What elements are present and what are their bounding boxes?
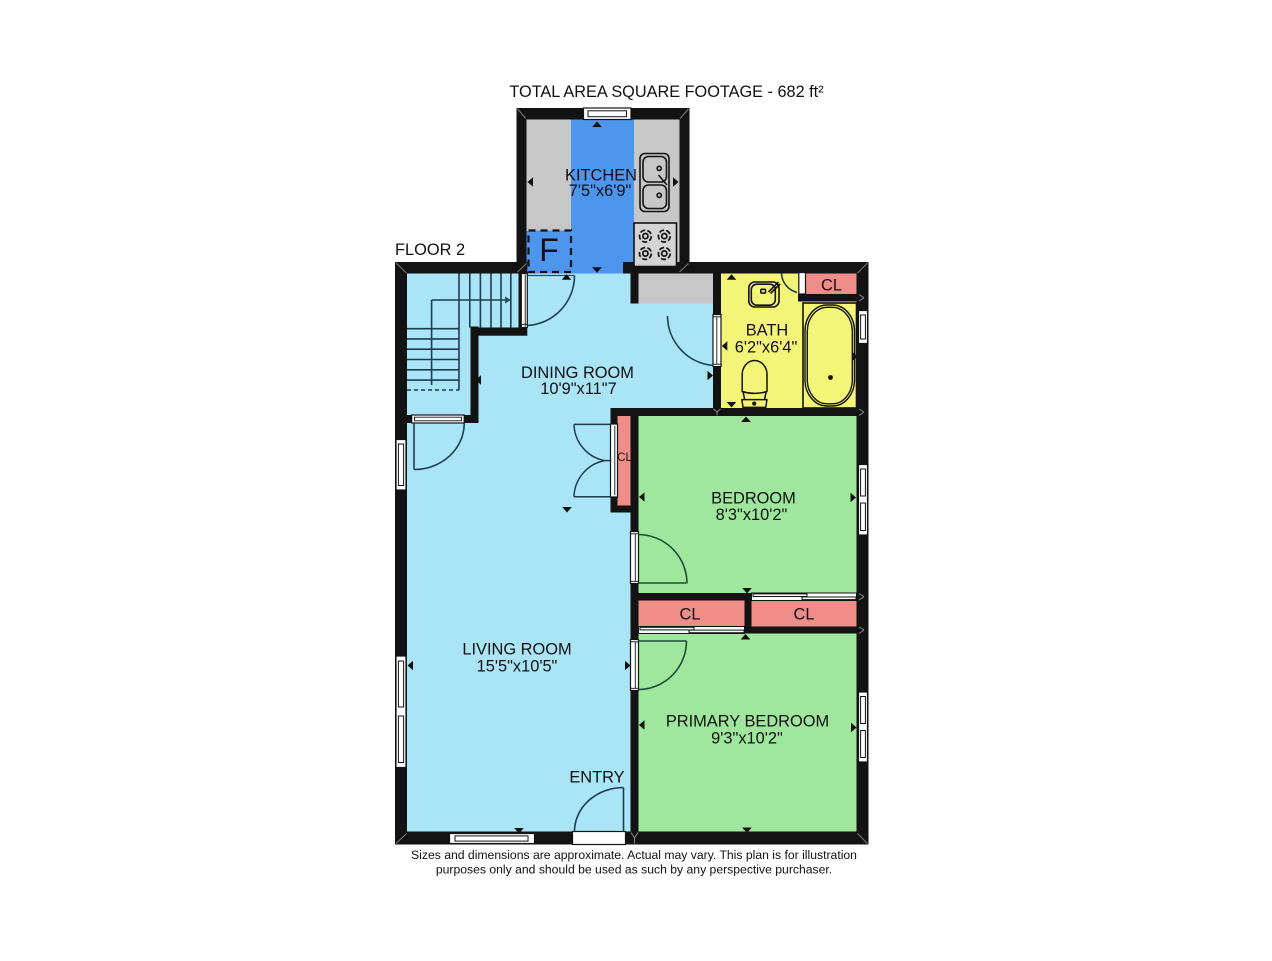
svg-text:LIVING ROOM: LIVING ROOM [462,641,571,659]
svg-text:PRIMARY BEDROOM: PRIMARY BEDROOM [666,713,829,731]
svg-text:F: F [539,232,559,268]
svg-text:15'5"x10'5": 15'5"x10'5" [477,658,558,676]
svg-text:10'9"x11"7: 10'9"x11"7 [540,380,616,398]
svg-text:CL: CL [821,277,842,295]
svg-text:7'5"x6'9": 7'5"x6'9" [569,182,632,200]
svg-text:8'3"x10'2": 8'3"x10'2" [716,506,788,524]
svg-text:BATH: BATH [746,322,789,340]
svg-text:CL: CL [794,606,815,624]
svg-text:BEDROOM: BEDROOM [711,490,796,508]
svg-text:TOTAL AREA SQUARE FOOTAGE - 68: TOTAL AREA SQUARE FOOTAGE - 682 ft² [509,83,824,101]
svg-text:6'2"x6'4": 6'2"x6'4" [735,339,798,357]
svg-text:Sizes and dimensions are appro: Sizes and dimensions are approximate. Ac… [411,848,857,862]
svg-text:purposes only and should be us: purposes only and should be used as such… [436,863,832,877]
svg-text:CL: CL [617,452,632,464]
svg-text:CL: CL [680,606,701,624]
svg-text:FLOOR 2: FLOOR 2 [395,241,465,259]
svg-text:ENTRY: ENTRY [569,769,624,787]
svg-text:9'3"x10'2": 9'3"x10'2" [711,730,783,748]
